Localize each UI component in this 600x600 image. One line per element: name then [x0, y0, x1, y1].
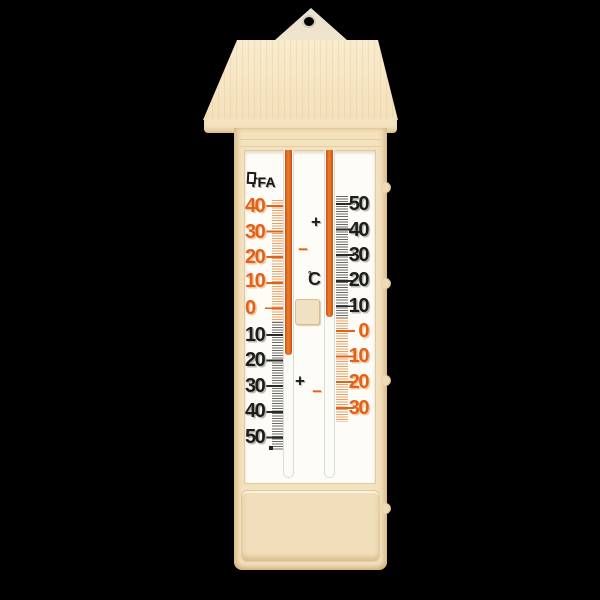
left-scale-label: 10 [245, 271, 272, 291]
right-scale-label: 20 [339, 372, 368, 392]
right-scale-label: 40 [339, 220, 368, 240]
right-scale-label: 0 [339, 321, 368, 341]
logo-page-icon [247, 172, 257, 184]
left-scale-label: 50 [245, 427, 272, 447]
mould-bump [383, 182, 391, 193]
upper-plus-sign: + [311, 214, 321, 231]
roof [200, 38, 400, 122]
left-scale-label: 20 [245, 350, 272, 370]
left-scale-label: 40 [245, 401, 272, 421]
right-scale-label: 10 [339, 296, 368, 316]
mould-bump [383, 278, 391, 289]
lower-plus-sign: + [295, 373, 305, 390]
lower-minus-sign: – [312, 382, 321, 399]
right-scale-label: 50 [339, 194, 368, 214]
right-scale-label: 10 [339, 346, 368, 366]
maximum-liquid-column [326, 150, 333, 317]
left-scale-label: 30 [245, 222, 272, 242]
right-scale-label: 20 [339, 270, 368, 290]
marker-slider [295, 299, 320, 325]
minimum-liquid-column [285, 150, 292, 355]
scale-end-dot [269, 446, 273, 450]
mould-bump [383, 503, 391, 514]
left-scale-label: 30 [245, 376, 272, 396]
right-scale-label: 30 [339, 398, 368, 418]
celsius-letter: C [308, 270, 321, 288]
right-scale-label: 30 [339, 245, 368, 265]
left-scale-label: 40 [245, 196, 272, 216]
left-scale-label: 10 [245, 325, 272, 345]
thermometer-product-photo: 4030201001020304050 50403020100102030 TF… [0, 0, 600, 600]
hanging-hole [302, 15, 316, 28]
left-scale-label: 20 [245, 247, 272, 267]
left-scale-label: 0 [245, 298, 272, 318]
mould-bump [383, 375, 391, 386]
bottom-reservoir-cover [241, 490, 380, 562]
upper-minus-sign: – [298, 240, 307, 257]
